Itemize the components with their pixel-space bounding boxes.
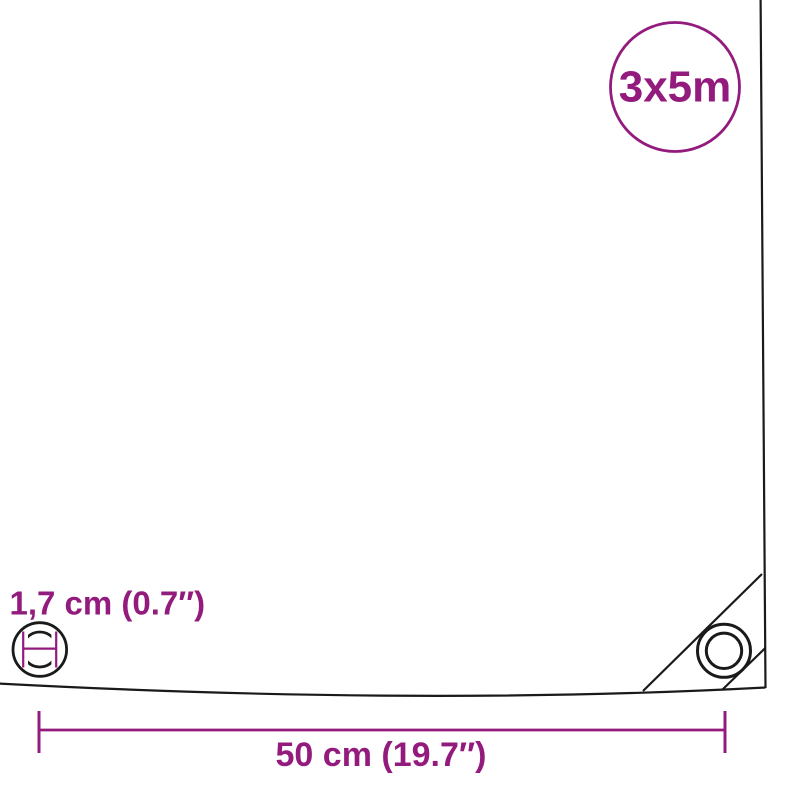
svg-text:3x5m: 3x5m: [619, 63, 732, 112]
svg-text:1,7 cm (0.7″): 1,7 cm (0.7″): [10, 585, 206, 622]
svg-text:50 cm (19.7″): 50 cm (19.7″): [276, 736, 487, 774]
